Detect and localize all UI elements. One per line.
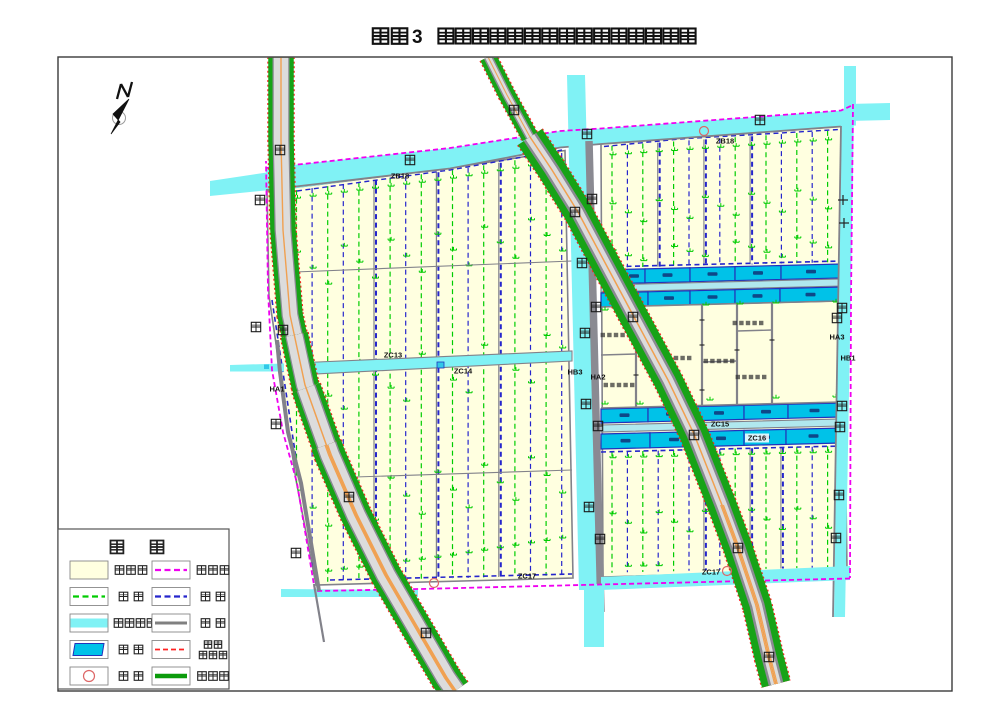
svg-text:ZC16: ZC16: [748, 434, 766, 443]
svg-text:ZB18: ZB18: [391, 172, 409, 181]
svg-text:ZC15: ZC15: [711, 420, 729, 429]
svg-text:HB1: HB1: [840, 354, 855, 363]
svg-text:HA3: HA3: [829, 333, 844, 342]
svg-text:HA2: HA2: [590, 373, 605, 382]
svg-text:ZC14: ZC14: [454, 367, 473, 376]
svg-text:ZC13: ZC13: [384, 351, 402, 360]
svg-text:HA1: HA1: [269, 385, 284, 394]
svg-text:ZC17: ZC17: [702, 568, 720, 577]
svg-text:3: 3: [412, 27, 423, 48]
svg-text:HB3: HB3: [567, 368, 582, 377]
svg-text:ZC17: ZC17: [518, 572, 536, 581]
svg-text:ZB18: ZB18: [716, 137, 734, 146]
